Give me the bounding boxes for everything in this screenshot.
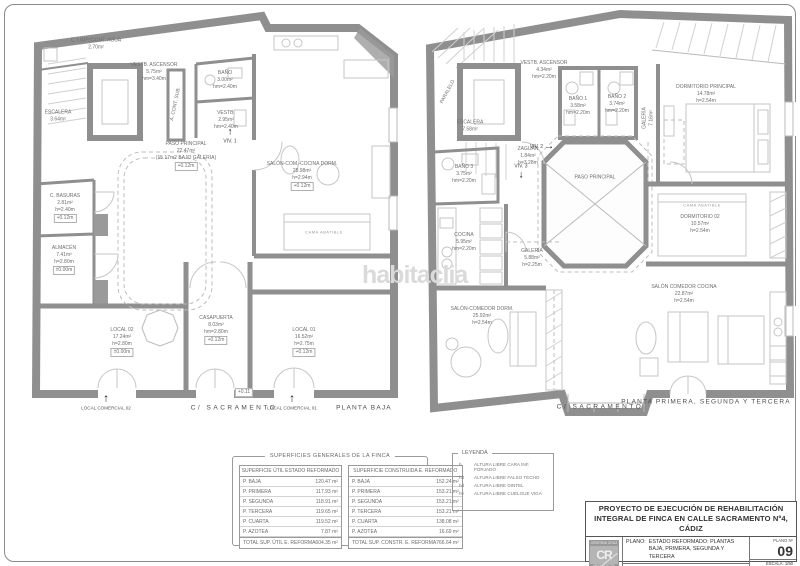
room-area: 5.75m² [146,69,162,76]
room-label: GALERÍA 7.16m² [641,107,655,129]
room-elevation: +0.12m [54,214,77,223]
legend-title: LEYENDA [458,450,492,456]
table-row: P. CUARTA 119.52 m² [240,517,341,527]
room-label: COCINA 5.95m² hm=2.20m [452,232,476,252]
room-label: ESCALERA 7.58m² [457,119,484,133]
plan-caption: PLANTA BAJA [336,405,392,412]
room-height: hm=3.40m [142,75,166,82]
legend-description: ALTURA LIBRE FALSO TECHO [474,475,539,480]
legend-description: ALTURA LIBRE DINTEL [474,483,524,488]
caption-arrow-icon: ↑ [289,394,295,405]
row-label: P. TERCERA [352,509,381,515]
project-title: PROYECTO DE EJECUCIÓN DE REHABILITACIÓN … [586,502,796,537]
room-name: CAMA ABATIBLE [305,229,343,234]
room-area: 2.95m² [218,117,234,124]
room-height: h=2.80m [112,341,132,348]
table-row: P. PRIMERA 153.21 m² [349,487,462,497]
room-label: ALMACÉN 7.41m² h=2.80m ±0.00m [52,245,76,275]
caption-arrow-icon: ↑ [103,394,109,405]
room-elevation: ±0.00m [111,348,134,357]
room-label: CAMA ABATIBLE [683,202,721,207]
legend-item: hft ALTURA LIBRE FALSO TECHO [457,473,549,481]
plano-num-label: PLANO Nº [773,538,793,543]
room-label: VESTB. ASCENSOR 5.75m² hm=3.40m [131,62,178,82]
legend-key: hft [459,475,470,480]
row-label: P. CUARTA [243,519,269,525]
room-area: 3.00m² [217,77,233,84]
caption-text: PLANTA PRIMERA, SEGUNDA Y TERCERA [621,399,791,406]
room-elevation: +0.11 [235,388,253,397]
row-value: 138.08 m² [436,519,459,525]
room-name: ESCALERA [45,109,72,116]
floor-plan-planta-baja: C. LIMP./CONT. AGUA 2.70m² VESTB. ASCENS… [28,8,400,412]
legend-description: ALTURA LIBRE CARA INF. FORJADO [474,462,547,472]
cr-logo-icon: CRISTINA CRUZ CR ARQUITECTA [589,540,619,566]
room-name: CAMA ABATIBLE [683,202,721,207]
room-area: 8.03m² [208,322,224,329]
room-height: h=2.25m [522,261,542,268]
room-label: GALERÍA 5.88m² h=2.25m [521,248,543,268]
room-area: 10.57m² [691,221,709,228]
legend-item: h ALTURA LIBRE CARA INF. FORJADO [457,460,549,473]
room-area: 3.74m² [609,101,625,108]
room-label: SALÓN-COMEDOR DORM. 25.92m² h=2.54m [451,306,514,326]
table-header: SUPERFICIE ÚTIL ESTADO REFORMADO [240,466,341,477]
room-label: DORMITORIO PRINCIPAL 14.78m² h=2.54m [676,84,736,104]
room-area: 2.70m² [88,44,104,51]
plano-num: 09 [777,544,793,558]
room-name: LOCAL 01 [292,327,315,334]
table-superficie-util: SUPERFICIE ÚTIL ESTADO REFORMADO P. BAJA… [239,465,342,549]
room-area: 3.58m² [570,103,586,110]
room-name: CASAPUERTA [199,315,232,322]
row-label: P. BAJA [352,479,370,485]
legend-description: ALTURA LIBRE CUELGUE VIGA [474,491,542,496]
room-name: ESCALERA [457,119,484,126]
row-value: 117.93 m² [316,489,338,495]
table-row: P. BAJA 120.47 m² [240,477,341,487]
room-name: LOCAL 02 [110,327,133,334]
escala: ESCALA: 1/50 [753,561,793,566]
total-label: TOTAL SUP. ÚTIL E. REFORMA [243,540,315,546]
row-label: P. TERCERA [243,509,272,515]
room-name: BAÑO 3 [455,164,473,171]
room-name: VESTB. ASCENSOR [521,60,568,67]
table-total-row: TOTAL SUP. ÚTIL E. REFORMA 604.35 m² [240,537,341,548]
scale-date-cell: ESCALA: 1/50 ENERO 2023 [750,559,796,566]
surface-summary-title: SUPERFICIES GENERALES DE LA FINCA [265,453,395,459]
room-area: 7.41m² [56,252,72,259]
room-height: hm=2.20m [452,177,476,184]
room-elevation: +0.12m [205,336,228,345]
row-value: 7.87 m² [321,529,338,535]
legend-item: hd ALTURA LIBRE DINTEL [457,481,549,489]
unit-entry-marker: → VIV. 2 [530,142,554,152]
row-value: 119.65 m² [316,509,338,515]
legend-item: hv ALTURA LIBRE CUELGUE VIGA [457,489,549,497]
room-height: h=2.54m [696,97,716,104]
room-label: PASO PRINCIPAL [575,175,616,182]
room-label: VESTB. ASCENSOR 4.34m² hm=2.20m [521,60,568,80]
entry-label: VIV. 1 [223,139,236,145]
total-value: 766.64 m² [436,540,459,546]
room-label: LOCAL 01 16.52m² h=2.75m +0.12m [292,327,315,357]
room-height: h=2.80m [54,259,74,266]
table-row: P. TERCERA 119.65 m² [240,507,341,517]
table-row: P. BAJA 152.24 m² [349,477,462,487]
room-elevation: +0.12m [293,348,316,357]
row-label: P. CUARTA [352,519,378,525]
room-area: 4.34m² [536,67,552,74]
plano-label: PLANO: [626,539,646,562]
total-value: 604.35 m² [315,540,338,546]
total-label: TOTAL SUP. CONSTR. E. REFORMA [352,540,436,546]
room-label: BAÑO 3 3.75m² hm=2.20m [452,164,476,184]
row-label: P. AZOTEA [243,529,268,535]
room-label: BAÑO 3.00m² hm=2.40m [213,70,237,90]
room-name: SALÓN-COMEDOR DORM. [451,306,514,313]
room-name: VESTB. [217,110,235,117]
room-label: +0.11 [235,387,253,397]
table-header: SUPERFICIE CONSTRUIDA E. REFORMADO [349,466,462,477]
entry-arrow-icon: ↓ [518,171,523,181]
table-row: P. CUARTA 138.08 m² [349,517,462,527]
room-label: PASO PRINCIPAL 22.47m² (15.17m2 BAJO GAL… [156,141,216,171]
room-area: 17.24m² [113,334,131,341]
plan-caption: ↑ LOCAL COMERCIAL 01 [267,394,317,411]
room-name: PASO PRINCIPAL [166,141,207,148]
room-height: hm=2.40m [213,83,237,90]
room-name: GALERÍA [641,107,648,129]
planta-tipo-linework [418,6,796,418]
plano-value: ESTADO REFORMADO: PLANTAS BAJA, PRIMERA,… [649,539,746,562]
room-label: C. LIMP./CONT. AGUA 2.70m² [71,37,121,51]
row-value: 119.52 m² [316,519,338,525]
room-name: BAÑO 1 [569,96,587,103]
room-label: BAÑO 1 3.58m² hm=2.20m [566,96,590,116]
room-label: BAÑO 2 3.74m² hm=2.20m [605,94,629,114]
caption-text: PLANTA BAJA [336,405,392,412]
floor-plan-planta-tipo: PARALELO VESTB. ASCENSOR 4.34m² hm=2.20m… [418,6,796,418]
room-name: VESTB. ASCENSOR [131,62,178,69]
room-area: 5.95m² [456,239,472,246]
room-label: C. BASURAS 2.81m² h=2.40m +0.12m [50,193,80,223]
row-value: 118.91 m² [316,499,338,505]
row-label: P. SEGUNDA [243,499,273,505]
row-label: P. BAJA [243,479,261,485]
room-name: DORMITORIO PRINCIPAL [676,84,736,91]
room-height: hm=2.20m [532,73,556,80]
room-height: hm=2.80m [204,329,228,336]
surface-summary-box: SUPERFICIES GENERALES DE LA FINCA SUPERF… [232,456,428,546]
room-subnote: (15.17m2 BAJO GALERIA) [156,155,216,162]
table-row: P. PRIMERA 117.93 m² [240,487,341,497]
room-label: CAMA ABATIBLE [305,229,343,234]
row-label: P. PRIMERA [352,489,380,495]
room-name: GALERÍA [521,248,543,255]
room-name: DORMITORIO 02 [680,214,719,221]
caption-text: LOCAL COMERCIAL 02 [81,406,131,411]
drawing-sheet: habitaclia [0,0,800,566]
room-height: hm=2.20m [452,245,476,252]
room-name: SALÓN COMEDOR COCINA [651,284,716,291]
entry-label: VIV. 2 [530,144,543,150]
table-row: P. AZOTEA 7.87 m² [240,527,341,537]
room-area: 5.88m² [524,255,540,262]
row-value: 16.69 m² [439,529,459,535]
room-area: 22.87m² [675,291,693,298]
room-name: COCINA [454,232,473,239]
unit-entry-marker: ↑ VIV. 1 [223,128,236,145]
room-height: h=2.94m [292,175,312,182]
room-label: CASAPUERTA 8.03m² hm=2.80m +0.12m [199,315,232,345]
logo-initials: CR [590,546,618,564]
table-row: P. SEGUNDA 118.91 m² [240,497,341,507]
caption-text: LOCAL COMERCIAL 01 [267,406,317,411]
legend-box: LEYENDA h ALTURA LIBRE CARA INF. FORJADO… [452,453,554,511]
room-name: BAÑO 2 [608,94,626,101]
room-name: BAÑO [218,70,232,77]
room-elevation: +0.12m [291,182,314,191]
architect-logo: CRISTINA CRUZ CR ARQUITECTA [586,537,623,566]
room-height: hm=2.20m [566,109,590,116]
room-label: LOCAL 02 17.24m² h=2.80m ±0.00m [110,327,133,357]
legend-key: hd [459,483,470,488]
room-height: h=2.75m [294,341,314,348]
title-block: PROYECTO DE EJECUCIÓN DE REHABILITACIÓN … [585,501,797,562]
plan-caption: PLANTA PRIMERA, SEGUNDA Y TERCERA [621,399,791,406]
room-area: 7.58m² [462,126,478,133]
room-area: 14.78m² [697,91,715,98]
room-height: hm=2.20m [605,107,629,114]
room-height: h=2.54m [472,319,492,326]
room-area: 1.84m² [520,153,536,160]
row-label: P. PRIMERA [243,489,271,495]
planta-baja-linework [28,8,400,412]
entry-arrow-icon: → [544,142,554,152]
entry-arrow-icon: ↑ [227,128,232,138]
room-name: C. BASURAS [50,193,80,200]
room-name: ALMACÉN [52,245,76,252]
room-name: C. LIMP./CONT. AGUA [71,37,121,44]
room-height: h=2.40m [55,207,75,214]
table-superficie-construida: SUPERFICIE CONSTRUIDA E. REFORMADO P. BA… [348,465,463,549]
table-row: P. SEGUNDA 153.21 m² [349,497,462,507]
legend-key: h [459,462,470,472]
room-label: SALÓN-COM.-COCINA DORM. 28.98m² h=2.94m … [267,161,338,191]
room-height: h=2.54m [690,227,710,234]
room-area: 2.81m² [57,200,73,207]
room-elevation: ±0.00m [53,266,76,275]
room-area: 7.16m² [648,110,655,126]
table-row: P. TERCERA 153.21 m² [349,507,462,517]
plan-caption: ↑ LOCAL COMERCIAL 02 [81,394,131,411]
plano-row: PLANO: ESTADO REFORMADO: PLANTAS BAJA, P… [623,537,749,564]
plan-caption: C/ SACRAMENTO [191,405,278,412]
table-total-row: TOTAL SUP. CONSTR. E. REFORMA 766.64 m² [349,537,462,548]
room-area: 3.75m² [456,171,472,178]
room-elevation: +0.12m [175,162,198,171]
room-label: DORMITORIO 02 10.57m² h=2.54m [680,214,719,234]
legend-key: hv [459,491,470,496]
room-area: 25.92m² [473,313,491,320]
room-area: 16.52m² [295,334,313,341]
room-name: SALÓN-COM.-COCINA DORM. [267,161,338,168]
patio [538,136,652,272]
room-area: 3.64m² [50,116,66,123]
room-label: SALÓN COMEDOR COCINA 22.87m² h=2.54m [651,284,716,304]
row-value: 120.47 m² [315,479,338,485]
watermark: habitaclia [362,261,467,290]
row-label: P. SEGUNDA [352,499,382,505]
room-label: ESCALERA 3.64m² [45,109,72,123]
unit-entry-marker: ↓ VIV. 3 [514,164,527,181]
row-label: P. AZOTEA [352,529,377,535]
table-row: P. AZOTEA 16.69 m² [349,527,462,537]
room-area: 22.47m² [177,148,195,155]
room-name: PASO PRINCIPAL [575,175,616,182]
room-height: h=2.54m [674,297,694,304]
room-area: 28.98m² [293,168,311,175]
caption-text: C/ SACRAMENTO [191,405,278,412]
